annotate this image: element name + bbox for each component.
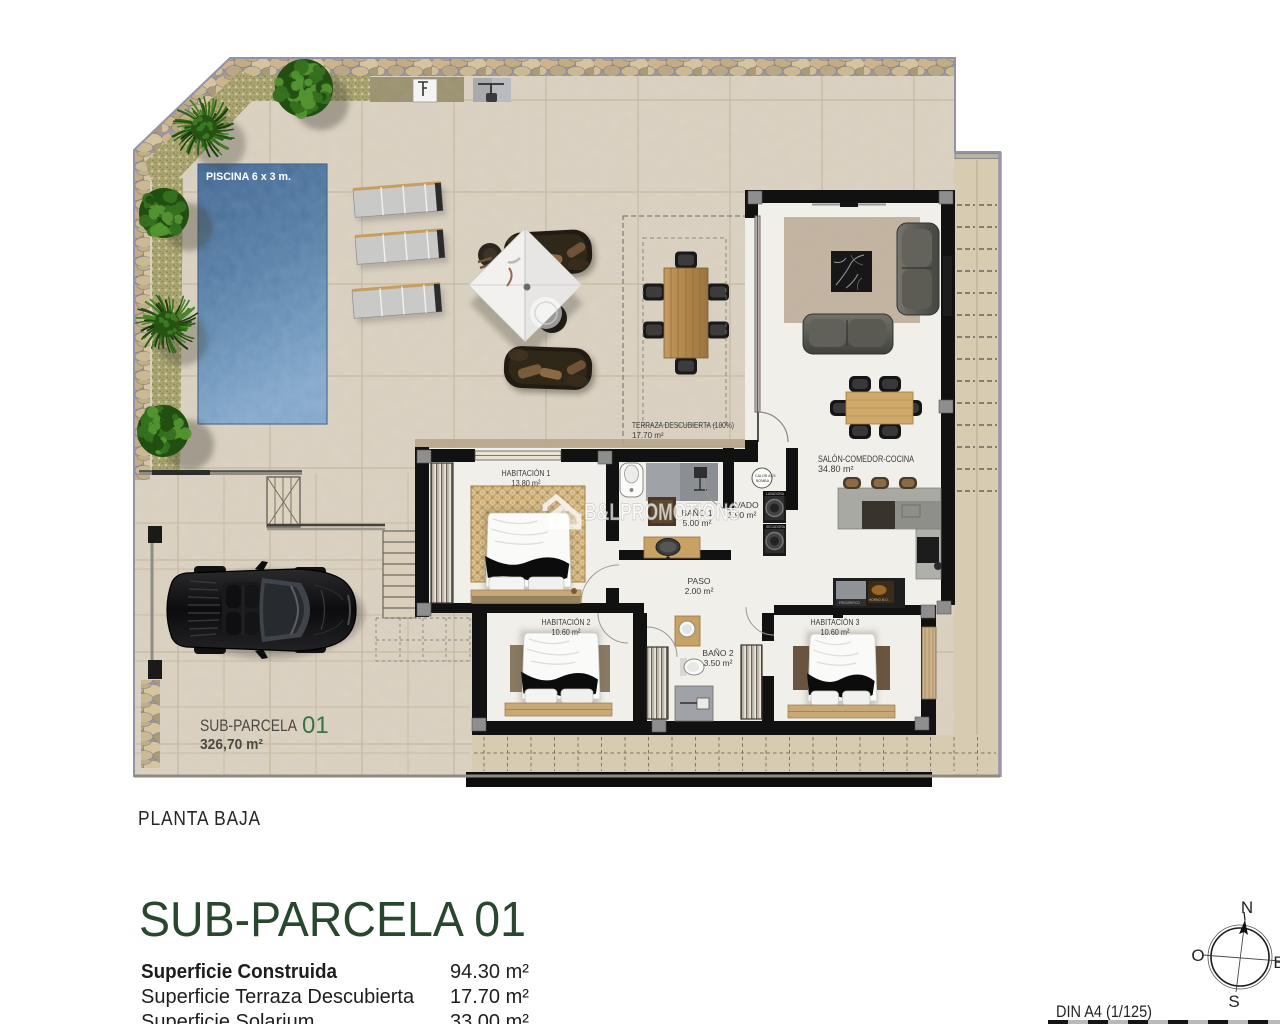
svg-text:Superficie Terraza Descubierta: Superficie Terraza Descubierta [141,986,415,1008]
svg-text:HABITACIÓN 1: HABITACIÓN 1 [502,468,551,478]
svg-text:10.60 m²: 10.60 m² [821,627,850,637]
svg-text:01: 01 [302,712,329,739]
svg-text:Superficie Solarium: Superficie Solarium [141,1011,314,1024]
svg-text:2.00 m²: 2.00 m² [685,586,714,596]
svg-text:BOMBA: BOMBA [756,479,770,483]
svg-text:94.30 m²: 94.30 m² [450,961,529,983]
svg-text:SECADORA: SECADORA [766,525,786,529]
svg-text:Superficie Construida: Superficie Construida [141,961,338,983]
svg-text:PISCINA 6 x 3 m.: PISCINA 6 x 3 m. [206,171,291,183]
svg-text:13.80 m²: 13.80 m² [512,478,541,488]
svg-text:TERRAZA DESCUBIERTA (100%): TERRAZA DESCUBIERTA (100%) [632,421,734,430]
svg-text:34.80 m²: 34.80 m² [818,464,854,474]
svg-text:PASO: PASO [688,576,711,586]
svg-text:BAÑO 2: BAÑO 2 [702,648,733,658]
svg-text:E: E [1273,953,1280,972]
svg-text:10.60 m²: 10.60 m² [552,627,581,637]
svg-text:O: O [1191,946,1204,965]
svg-text:HORNO M.O.: HORNO M.O. [869,598,889,602]
svg-text:17.70 m²: 17.70 m² [450,986,529,1008]
svg-text:LAVADORA: LAVADORA [766,492,785,496]
svg-text:CALOR ACS: CALOR ACS [755,474,776,478]
svg-text:17.70 m²: 17.70 m² [632,431,664,440]
svg-text:PLANTA BAJA: PLANTA BAJA [138,808,261,830]
svg-text:3.50 m²: 3.50 m² [704,658,733,668]
svg-text:SUB-PARCELA: SUB-PARCELA [200,717,297,735]
svg-text:B&LPROMOTIONS: B&LPROMOTIONS [584,499,740,526]
svg-text:33.00 m²: 33.00 m² [450,1011,529,1024]
svg-text:S: S [1228,992,1239,1011]
svg-text:HABITACIÓN 3: HABITACIÓN 3 [811,617,860,627]
svg-text:SUB-PARCELA 01: SUB-PARCELA 01 [139,893,526,947]
svg-text:N: N [1241,898,1253,917]
svg-text:326,70 m²: 326,70 m² [200,737,263,753]
svg-text:DIN A4 (1/125): DIN A4 (1/125) [1056,1002,1152,1021]
svg-text:HABITACIÓN 2: HABITACIÓN 2 [542,617,591,627]
svg-text:SALÓN-COMEDOR-COCINA: SALÓN-COMEDOR-COCINA [818,454,914,464]
svg-text:FRIGORIFICO: FRIGORIFICO [839,601,860,605]
